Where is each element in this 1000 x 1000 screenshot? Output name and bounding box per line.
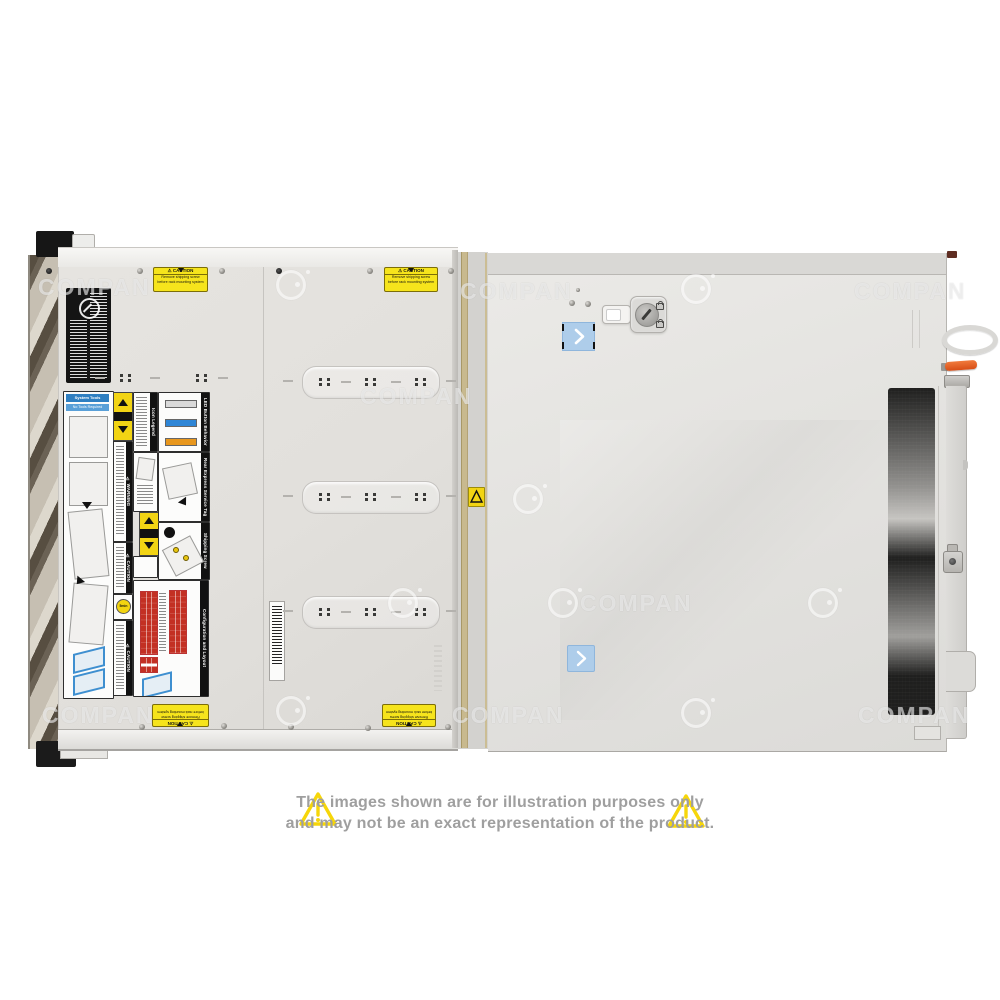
rear-tag-title: Rear Express Service Tag	[201, 453, 209, 521]
registration-mark	[593, 324, 595, 331]
diagram-box	[68, 583, 108, 646]
five-min-label: 5min	[113, 594, 133, 620]
caution-line: Remove shipping screw	[385, 275, 437, 280]
hazard-arrow-icon	[144, 542, 154, 549]
engraved-marking	[912, 310, 920, 348]
registration-mark	[562, 342, 564, 349]
diagram-box	[136, 457, 156, 481]
no-tools-subtitle: No Tools Required	[66, 404, 109, 411]
panel-dash	[391, 496, 401, 498]
caution-line: Remove shipping screw	[153, 714, 208, 719]
five-min-icon: 5min	[116, 599, 131, 614]
shipping-screw-label: Shipping Screw Removal	[158, 522, 210, 580]
icon-legend-label: Icon Legend	[133, 392, 158, 452]
caution-line: before rack mounting system	[154, 280, 207, 285]
watermark-text: COMPAN	[858, 702, 971, 729]
panel-dash	[218, 377, 228, 379]
screw	[448, 268, 454, 274]
panel-dash	[283, 610, 293, 612]
panel-dash	[283, 380, 293, 382]
thumbscrew	[943, 551, 963, 573]
vent-dots	[365, 608, 377, 616]
screw	[585, 301, 591, 307]
left-cover-top-rail	[58, 247, 458, 269]
watermark-logo-icon	[548, 588, 578, 618]
watermark-text: COMPAN	[452, 702, 565, 729]
vent-dots	[365, 493, 377, 501]
warning-title: ⚠ WARNING	[126, 442, 132, 541]
barcode-stripes	[272, 606, 282, 666]
orange-release-lever	[945, 360, 978, 371]
cover-keylock	[630, 296, 667, 333]
watermark-text: COMPAN	[854, 278, 967, 305]
chevron-right-icon	[563, 323, 594, 350]
caution-line: before rack mounting system	[383, 710, 435, 715]
cover-removal-instructions-label: System Tools No Tools Required	[63, 391, 114, 699]
label-text-lines	[136, 397, 147, 447]
diagram-box	[69, 416, 108, 458]
panel-dash	[95, 377, 105, 379]
edge-bump	[963, 460, 968, 470]
shipping-title: Shipping Screw Removal	[201, 523, 209, 579]
caution-title: ⚠ CAUTION	[126, 543, 132, 593]
caution-sticker-bottom-left: ⚠ CAUTION Remove shipping screw before r…	[152, 704, 209, 727]
vent-dots	[415, 493, 427, 501]
vent-dots	[120, 374, 132, 382]
regulatory-label	[66, 288, 111, 383]
chevron-right-icon	[568, 646, 594, 671]
hazard-arrow-icon	[144, 517, 154, 524]
panel-dash	[341, 381, 351, 383]
rear-tab	[947, 251, 957, 258]
caution-label-small: ⚠ CAUTION	[113, 542, 133, 594]
vent-dots	[415, 608, 427, 616]
vent-dots	[196, 374, 208, 382]
led-bar-blue	[165, 419, 197, 427]
watermark-logo-icon	[276, 696, 306, 726]
vent-dots	[319, 378, 331, 386]
screw	[576, 288, 580, 292]
service-diagram-label	[133, 452, 158, 512]
configuration-layout-label: Configuration and Layout	[133, 580, 209, 697]
psu-engraved-line	[938, 386, 939, 726]
config-title: Configuration and Layout	[200, 581, 208, 696]
cover-latch-slider	[602, 305, 631, 324]
unlocked-icon	[656, 303, 664, 310]
caution-line: before rack mounting system	[385, 280, 437, 285]
engraved-text	[434, 645, 442, 691]
vent-dots	[319, 493, 331, 501]
cover-handle-slot	[302, 481, 440, 514]
left-cover-bottom-rail	[58, 729, 458, 751]
label-text-lines	[116, 446, 124, 536]
main-cover-top-band	[488, 253, 946, 275]
vent-dots	[319, 608, 331, 616]
panel-dash	[341, 496, 351, 498]
blue-diagram	[142, 671, 172, 697]
hazard-band	[114, 412, 132, 421]
led-button-title: LED Button Behavior	[201, 393, 209, 451]
gap-hinge-strip	[461, 252, 468, 748]
server-top-view-photo: ⚠ CAUTION Remove shipping screw before r…	[0, 0, 1000, 1000]
screw	[367, 268, 373, 274]
blue-chevron-sticker-bottom	[567, 645, 595, 672]
left-cover-seam	[263, 267, 264, 729]
pull-ring-handle	[942, 325, 998, 355]
sticker-notch	[405, 722, 413, 727]
screw	[445, 724, 451, 730]
sticker-notch	[407, 267, 415, 272]
screw	[221, 723, 227, 729]
diagram-box	[69, 462, 108, 506]
locked-icon	[656, 321, 664, 328]
arrow-icon	[82, 502, 92, 509]
led-bar-orange	[165, 438, 197, 446]
hazard-arrow-icon	[118, 399, 128, 406]
small-blank-label	[133, 556, 158, 578]
panel-dash	[341, 611, 351, 613]
caution-line: Remove shipping screw	[383, 714, 435, 719]
pinch-hazard-sticker	[113, 392, 133, 441]
psu-vent-grid	[888, 388, 935, 715]
hot-surface-triangle-icon	[469, 488, 484, 506]
panel-dash	[446, 610, 456, 612]
disclaimer-line-1: The images shown are for illustration pu…	[0, 792, 1000, 813]
rear-service-tag-label: Rear Express Service Tag	[158, 452, 210, 522]
watermark-logo-icon	[681, 274, 711, 304]
watermark-logo-icon	[276, 270, 306, 300]
watermark-text: COMPAN	[580, 590, 693, 617]
panel-dash	[446, 495, 456, 497]
watermark-text: COMPAN	[360, 383, 473, 410]
screw	[365, 725, 371, 731]
caution-line: before rack mounting system	[153, 710, 208, 715]
arrow-icon	[178, 497, 190, 508]
panel-dash	[446, 380, 456, 382]
watermark-text: COMPAN	[38, 274, 151, 301]
gap-hinge-line	[485, 253, 487, 748]
screw-icon	[164, 527, 175, 538]
caution-sticker-bottom-mid: ⚠ CAUTION Remove shipping screw before r…	[382, 704, 436, 727]
watermark-logo-icon	[388, 588, 418, 618]
screw-dot-icon	[173, 547, 179, 553]
drive-bay-grid	[140, 657, 158, 673]
disclaimer-line-2: and may not be an exact representation o…	[0, 813, 1000, 834]
drive-bay-grid	[169, 590, 187, 654]
barcode-label	[269, 601, 285, 681]
caution-sticker-top-left: ⚠ CAUTION Remove shipping screw before r…	[153, 267, 208, 292]
diagram-box	[68, 508, 110, 579]
sticker-notch	[177, 267, 185, 272]
hazard-arrow-icon	[118, 426, 128, 433]
drive-bay-grid	[140, 591, 158, 655]
label-text-lines	[159, 593, 166, 651]
warning-label: ⚠ WARNING	[113, 441, 133, 542]
pinch-hazard-sticker	[139, 512, 160, 556]
label-text-block	[90, 293, 107, 378]
psu-handle-tab	[946, 651, 976, 692]
led-bar-gray	[165, 400, 197, 408]
system-tools-title: System Tools	[66, 394, 109, 402]
caution-line: Remove shipping screw	[154, 275, 207, 280]
label-text-lines	[116, 625, 124, 689]
caution-label-tall: ⚠ CAUTION	[113, 620, 133, 696]
blue-chevron-sticker-top	[562, 322, 595, 351]
label-text-lines	[116, 547, 124, 589]
cover-handle-slot	[302, 596, 440, 629]
cover-reflection	[560, 420, 900, 720]
label-text-block	[70, 320, 87, 378]
registration-mark	[562, 324, 564, 331]
latch-tab	[606, 309, 621, 321]
panel-dash	[283, 495, 293, 497]
watermark-logo-icon	[808, 588, 838, 618]
hot-surface-sticker	[468, 487, 485, 507]
icon-legend-title: Icon Legend	[150, 393, 157, 451]
caution-sticker-top-mid: ⚠ CAUTION Remove shipping screw before r…	[384, 267, 438, 292]
led-button-behavior-label: LED Button Behavior	[158, 392, 210, 452]
label-text-lines	[137, 485, 153, 505]
caution-title: ⚠ CAUTION	[126, 621, 132, 695]
panel-dash	[150, 377, 160, 379]
watermark-logo-icon	[513, 484, 543, 514]
watermark-text: COMPAN	[460, 278, 573, 305]
registration-mark	[593, 342, 595, 349]
watermark-logo-icon	[681, 698, 711, 728]
screw-dot-icon	[183, 555, 189, 561]
sticker-notch	[177, 722, 185, 727]
watermark-text: COMPAN	[42, 702, 155, 729]
disclaimer-text: The images shown are for illustration pu…	[0, 792, 1000, 834]
screw	[219, 268, 225, 274]
diagram-box	[162, 462, 198, 500]
hazard-band	[140, 529, 159, 538]
